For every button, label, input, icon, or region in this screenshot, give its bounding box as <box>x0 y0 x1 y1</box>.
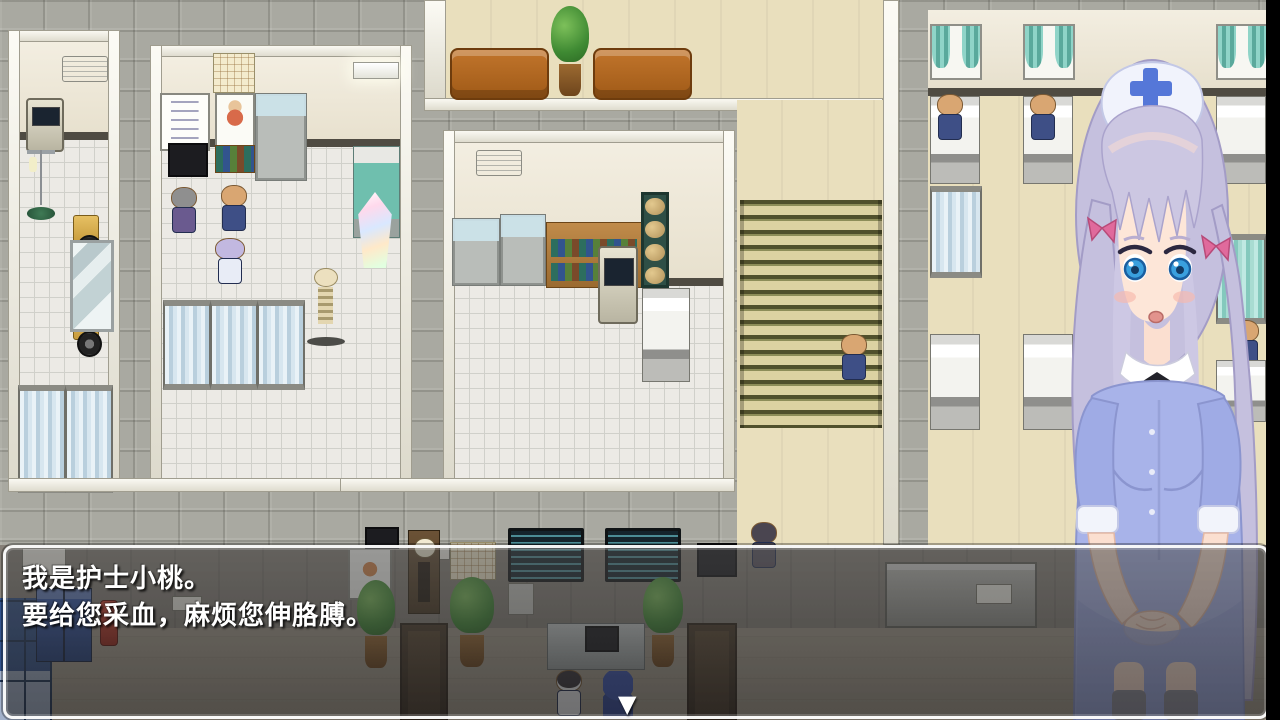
sofa <box>593 48 692 100</box>
ward-window <box>930 24 982 80</box>
medicine-cabinet <box>452 218 500 286</box>
bottle-shelf <box>215 145 255 173</box>
patient-character <box>934 92 964 142</box>
wall-trim <box>150 45 412 57</box>
wall-trim <box>883 0 899 545</box>
wall-trim <box>8 30 120 42</box>
patient-character <box>218 183 248 233</box>
privacy-screen <box>930 186 982 278</box>
skeleton-model <box>305 268 347 346</box>
supply-rack <box>641 192 669 288</box>
hospital-bed <box>930 334 980 430</box>
mirror <box>70 240 114 332</box>
air-conditioner <box>62 56 108 82</box>
calendar <box>213 53 255 93</box>
anatomy-poster <box>215 93 255 151</box>
continue-arrow-icon[interactable]: ▼ <box>618 690 636 718</box>
wall-trim <box>340 478 735 492</box>
privacy-screen <box>65 385 113 493</box>
patient-on-stairs <box>838 332 868 382</box>
right-black-bar <box>1266 0 1280 720</box>
sofa <box>450 48 549 100</box>
privacy-screen <box>210 300 258 390</box>
medical-monitor <box>26 98 64 152</box>
laptop-desk <box>168 143 208 177</box>
wall-trim <box>723 130 735 492</box>
privacy-screen <box>257 300 305 390</box>
wall-trim <box>424 0 446 100</box>
stairs <box>740 200 882 428</box>
medicine-cabinet <box>255 93 307 181</box>
message-window[interactable]: 我是护士小桃。 要给您采血，麻烦您伸胳膊。 ▼ <box>3 545 1269 719</box>
iv-stand <box>24 150 58 220</box>
wall-trim <box>443 130 455 492</box>
dialogue-line-1: 我是护士小桃。 <box>22 558 211 595</box>
privacy-screen <box>163 300 211 390</box>
potted-plant <box>551 6 589 96</box>
air-conditioner <box>476 150 522 176</box>
doctor-character <box>168 185 198 235</box>
wall-light <box>353 62 399 79</box>
dialogue-line-2: 要给您采血，麻烦您伸胳膊。 <box>22 595 373 632</box>
medical-machine <box>598 246 638 324</box>
wall-trim <box>400 45 412 492</box>
hospital-bed <box>642 288 690 382</box>
wall-trim <box>443 130 735 143</box>
privacy-screen <box>18 385 66 493</box>
player-character <box>214 236 244 286</box>
dish-shelf <box>500 214 546 286</box>
game-viewport[interactable]: 我是护士小桃。 要给您采血，麻烦您伸胳膊。 ▼ <box>0 0 1280 720</box>
